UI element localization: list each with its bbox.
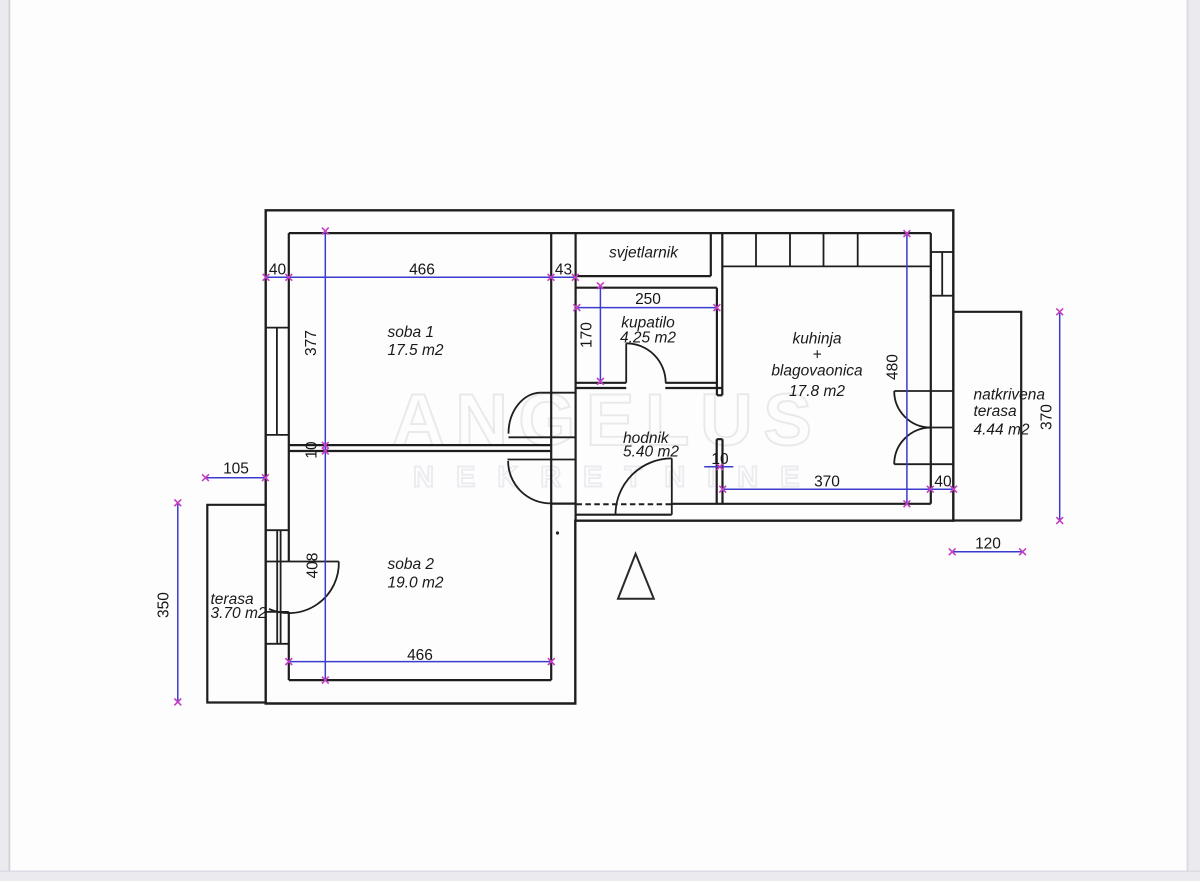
svg-text:350: 350: [156, 592, 173, 618]
svg-text:170: 170: [579, 322, 596, 348]
svg-text:kuhinja: kuhinja: [792, 331, 841, 348]
svg-text:3.70 m2: 3.70 m2: [211, 605, 267, 622]
svg-text:43: 43: [555, 261, 572, 278]
svg-text:svjetlarnik: svjetlarnik: [609, 244, 679, 261]
svg-text:120: 120: [975, 536, 1001, 553]
svg-text:soba 2: soba 2: [388, 556, 435, 573]
svg-text:377: 377: [303, 330, 320, 356]
svg-text:+: +: [812, 347, 821, 364]
svg-text:40: 40: [269, 262, 287, 279]
svg-text:480: 480: [885, 354, 902, 380]
svg-text:466: 466: [409, 262, 435, 279]
svg-text:40: 40: [934, 474, 952, 491]
svg-text:5.40 m2: 5.40 m2: [623, 444, 679, 461]
svg-text:10: 10: [711, 451, 729, 468]
svg-text:17.5 m2: 17.5 m2: [388, 342, 444, 359]
svg-text:blagovaonica: blagovaonica: [771, 363, 863, 380]
svg-text:4.44 m2: 4.44 m2: [974, 422, 1030, 439]
svg-text:soba 1: soba 1: [388, 324, 435, 341]
svg-text:10: 10: [304, 441, 321, 459]
svg-text:105: 105: [223, 461, 249, 478]
svg-text:250: 250: [635, 291, 661, 308]
svg-text:ANGELUS: ANGELUS: [392, 380, 822, 461]
svg-text:4.25 m2: 4.25 m2: [620, 330, 676, 347]
svg-text:natkrivena: natkrivena: [974, 387, 1046, 404]
svg-text:19.0 m2: 19.0 m2: [388, 575, 444, 592]
svg-text:466: 466: [407, 647, 433, 664]
svg-text:17.8 m2: 17.8 m2: [789, 383, 845, 400]
svg-text:370: 370: [814, 474, 840, 491]
svg-text:terasa: terasa: [974, 403, 1017, 420]
svg-text:408: 408: [305, 553, 322, 579]
svg-text:370: 370: [1039, 404, 1056, 430]
